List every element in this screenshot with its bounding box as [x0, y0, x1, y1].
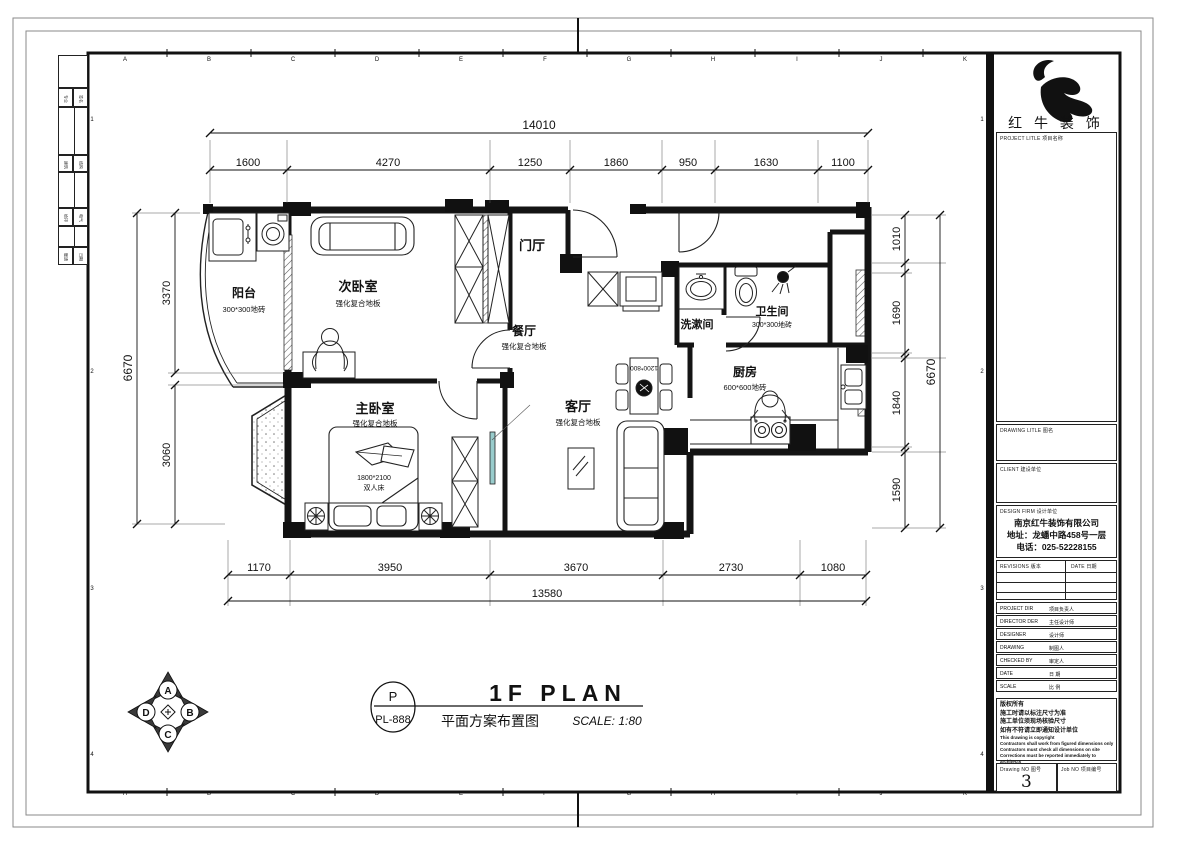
- floor-plan: 阳台 300*300地砖 次卧室 强化复合地板 门厅 餐厅 强化复合地板 洗漱间…: [200, 199, 870, 539]
- svg-text:H: H: [711, 791, 715, 797]
- sofa: [617, 421, 664, 531]
- washing-machine: [257, 213, 289, 251]
- label-living: 客厅: [565, 399, 591, 414]
- svg-text:F: F: [543, 791, 547, 797]
- wardrobe-master: [452, 437, 478, 527]
- label-balcony: 阳台: [232, 285, 256, 300]
- label-living-finish: 强化复合地板: [556, 417, 601, 427]
- svg-text:K: K: [963, 791, 967, 797]
- svg-text:A: A: [123, 791, 127, 797]
- label-kitchen: 厨房: [733, 364, 757, 379]
- drawing-title-label: DRAWING LITLE 图名: [997, 425, 1116, 434]
- secondary-bed: [311, 217, 414, 255]
- svg-text:2: 2: [90, 369, 94, 375]
- svg-text:3670: 3670: [564, 562, 588, 574]
- label-master-bedroom: 主卧室: [355, 401, 394, 416]
- svg-text:3060: 3060: [161, 443, 173, 467]
- plan-scale: SCALE: 1:80: [572, 714, 642, 728]
- svg-text:2: 2: [980, 369, 984, 375]
- tv-cabinet: [568, 448, 594, 489]
- strip-cell: 日期: [78, 251, 84, 264]
- svg-text:2730: 2730: [719, 562, 743, 574]
- project-title-label: PROJECT LITLE 项目名称: [997, 133, 1116, 142]
- kitchen-sink: [841, 365, 866, 409]
- master-bedroom-door: [439, 381, 477, 419]
- label-bed-size: 1800*2100: [357, 475, 391, 482]
- svg-text:F: F: [543, 57, 547, 63]
- svg-text:1080: 1080: [821, 562, 845, 574]
- svg-text:B: B: [207, 791, 211, 797]
- svg-text:6670: 6670: [924, 358, 938, 385]
- svg-text:D: D: [375, 57, 380, 63]
- svg-text:4270: 4270: [376, 157, 400, 169]
- plan-title-en: 1F PLAN: [489, 680, 627, 706]
- svg-text:1250: 1250: [518, 157, 542, 169]
- svg-text:B: B: [207, 57, 211, 63]
- svg-text:13580: 13580: [532, 588, 563, 600]
- svg-text:14010: 14010: [522, 118, 556, 132]
- compass-rose: A B C D: [128, 672, 208, 752]
- field-checked-by: CHECKED BY审定人: [996, 654, 1117, 666]
- company-address: 地址：龙蟠中路458号一层: [997, 529, 1116, 541]
- hall-cabinets: [588, 272, 662, 311]
- field-date: DATE日 期: [996, 667, 1117, 679]
- compass-b: B: [186, 708, 193, 719]
- svg-text:1840: 1840: [891, 391, 903, 415]
- grid-letters-top: AB CD EF GH IJ K: [123, 49, 967, 63]
- label-master-bedroom-finish: 强化复合地板: [353, 418, 398, 428]
- svg-text:4: 4: [980, 752, 984, 758]
- plan-code: PL-888: [375, 714, 410, 726]
- logo-area: 红 牛 装 饰: [996, 55, 1117, 132]
- svg-text:1590: 1590: [891, 478, 903, 502]
- svg-text:J: J: [880, 57, 883, 63]
- svg-text:A: A: [123, 57, 127, 63]
- bay-window: [252, 394, 288, 506]
- label-dining-finish: 强化复合地板: [502, 341, 547, 351]
- stove: [751, 417, 790, 444]
- label-kitchen-finish: 600*600地砖: [724, 382, 767, 392]
- svg-text:1: 1: [980, 117, 984, 123]
- drawing-title-box: DRAWING LITLE 图名: [996, 424, 1117, 461]
- svg-text:C: C: [291, 791, 296, 797]
- svg-text:E: E: [459, 57, 463, 63]
- svg-text:I: I: [796, 57, 798, 63]
- wall-tv-master: [490, 405, 530, 484]
- svg-text:1010: 1010: [891, 227, 903, 251]
- strip-cell: 给排: [63, 212, 69, 225]
- svg-text:E: E: [459, 791, 463, 797]
- svg-text:D: D: [375, 791, 380, 797]
- label-bathroom: 卫生间: [756, 304, 789, 318]
- svg-text:950: 950: [679, 157, 697, 169]
- copyright-box: 版权所有 施工时请以标注尺寸为准 施工单位须现场核验尺寸 如有不符请立即通知设计…: [996, 698, 1117, 761]
- label-washroom: 洗漱间: [681, 317, 714, 331]
- revisions-label: REVISIONS 版本: [997, 561, 1041, 570]
- redniu-logo-icon: [1033, 60, 1092, 122]
- label-balcony-finish: 300*300地砖: [223, 304, 266, 314]
- revisions-table: REVISIONS 版本 DATE 日期: [996, 560, 1117, 600]
- svg-text:1100: 1100: [831, 157, 855, 169]
- svg-text:3950: 3950: [378, 562, 402, 574]
- svg-text:3: 3: [90, 586, 94, 592]
- field-project-dir: PROJECT DIR项目负责人: [996, 602, 1117, 614]
- logo-text: 红 牛 装 饰: [1008, 115, 1104, 131]
- title-block: 红 牛 装 饰 PROJECT LITLE 项目名称 DRAWING LITLE…: [995, 53, 1121, 792]
- company-phone: 电话：025-52228155: [997, 541, 1116, 553]
- svg-text:3: 3: [980, 586, 984, 592]
- strip-cell: 专业: [63, 93, 69, 106]
- svg-text:1630: 1630: [754, 157, 778, 169]
- label-bed-type: 双人床: [364, 483, 385, 492]
- compass-c: C: [164, 730, 171, 741]
- job-no-box: Job NO 项目编号: [1057, 763, 1117, 792]
- dim-labels: 14010 16004270 12501860 9501630 1100 117…: [121, 118, 938, 600]
- strip-cell: 建筑: [63, 159, 69, 172]
- design-firm-box: DESIGN FIRM 设计单位 南京红牛装饰有限公司 地址：龙蟠中路458号一…: [996, 505, 1117, 558]
- strip-cell: 签名: [78, 93, 84, 106]
- plan-title-bar: P PL-888 1F PLAN 平面方案布置图 SCALE: 1:80: [371, 680, 643, 732]
- drawing-sheet: { "sheet": { "grid_top": ["A","B","C","D…: [0, 0, 1200, 848]
- svg-text:1170: 1170: [247, 562, 271, 574]
- compass-d: D: [142, 708, 149, 719]
- field-designer: DESIGNER设计师: [996, 628, 1117, 640]
- drawing-no-box: Drawing NO 图号 3: [996, 763, 1057, 792]
- field-director: DIRECTOR DER主任设计师: [996, 615, 1117, 627]
- field-scale: SCALE比 例: [996, 680, 1117, 692]
- svg-text:C: C: [291, 57, 296, 63]
- label-secondary-bedroom: 次卧室: [338, 279, 377, 294]
- drawing-no-value: 3: [1021, 772, 1032, 792]
- svg-text:1: 1: [90, 117, 94, 123]
- shower-head: [772, 266, 796, 294]
- strip-cell: 暖通: [63, 251, 69, 264]
- client-box: CLIENT 建设单位: [996, 463, 1117, 503]
- svg-text:G: G: [627, 57, 632, 63]
- svg-text:K: K: [963, 57, 967, 63]
- strip-cell: 电气: [78, 212, 84, 225]
- plan-code-letter: P: [389, 689, 398, 704]
- client-label: CLIENT 建设单位: [997, 464, 1116, 473]
- label-dining: 餐厅: [512, 323, 536, 338]
- entry-door: [573, 210, 617, 257]
- svg-text:H: H: [711, 57, 715, 63]
- balcony-sink: [209, 213, 256, 261]
- toilet: [735, 267, 757, 306]
- compass-a: A: [164, 686, 171, 697]
- job-no-label: Job NO 项目编号: [1058, 764, 1116, 773]
- strip-cell: 结构: [78, 159, 84, 172]
- svg-text:1600: 1600: [236, 157, 260, 169]
- washbasin: [679, 267, 724, 309]
- design-firm-label: DESIGN FIRM 设计单位: [997, 506, 1116, 515]
- svg-text:4: 4: [90, 752, 94, 758]
- label-secondary-bedroom-finish: 强化复合地板: [336, 298, 381, 308]
- svg-text:G: G: [627, 791, 632, 797]
- svg-text:1860: 1860: [604, 157, 628, 169]
- label-entry: 门厅: [519, 238, 545, 253]
- label-bathroom-finish: 300*300地砖: [752, 320, 792, 329]
- date-col-label: DATE 日期: [1068, 561, 1097, 570]
- svg-text:J: J: [880, 791, 883, 797]
- svg-text:3370: 3370: [161, 281, 173, 305]
- wardrobe-secondary: [455, 215, 509, 323]
- signature-strip: 专业 签名 建筑 结构 给排 电气 暖通 日期: [58, 55, 88, 265]
- company-name: 南京红牛装饰有限公司: [997, 517, 1116, 529]
- field-drawing: DRAWING制图人: [996, 641, 1117, 653]
- svg-text:6670: 6670: [121, 354, 135, 381]
- project-title-box: PROJECT LITLE 项目名称: [996, 132, 1117, 422]
- svg-text:1690: 1690: [891, 301, 903, 325]
- label-table-size: 1200*800: [630, 364, 658, 371]
- plan-title-cn: 平面方案布置图: [441, 713, 539, 729]
- top-right-door: [679, 212, 719, 252]
